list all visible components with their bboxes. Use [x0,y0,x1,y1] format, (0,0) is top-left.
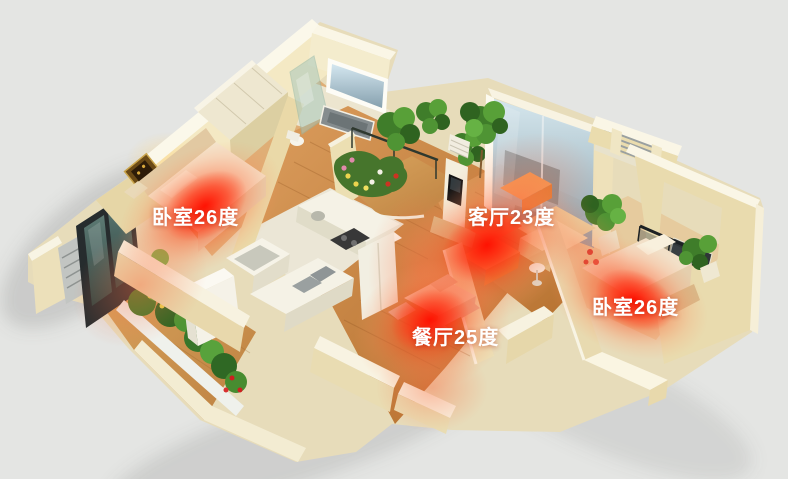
heating-floorplan-render: 卧室26度 客厅23度 餐厅25度 卧室26度 [0,0,788,479]
kitchen-sink [311,211,325,221]
floorplan-3d-scene [0,0,788,479]
